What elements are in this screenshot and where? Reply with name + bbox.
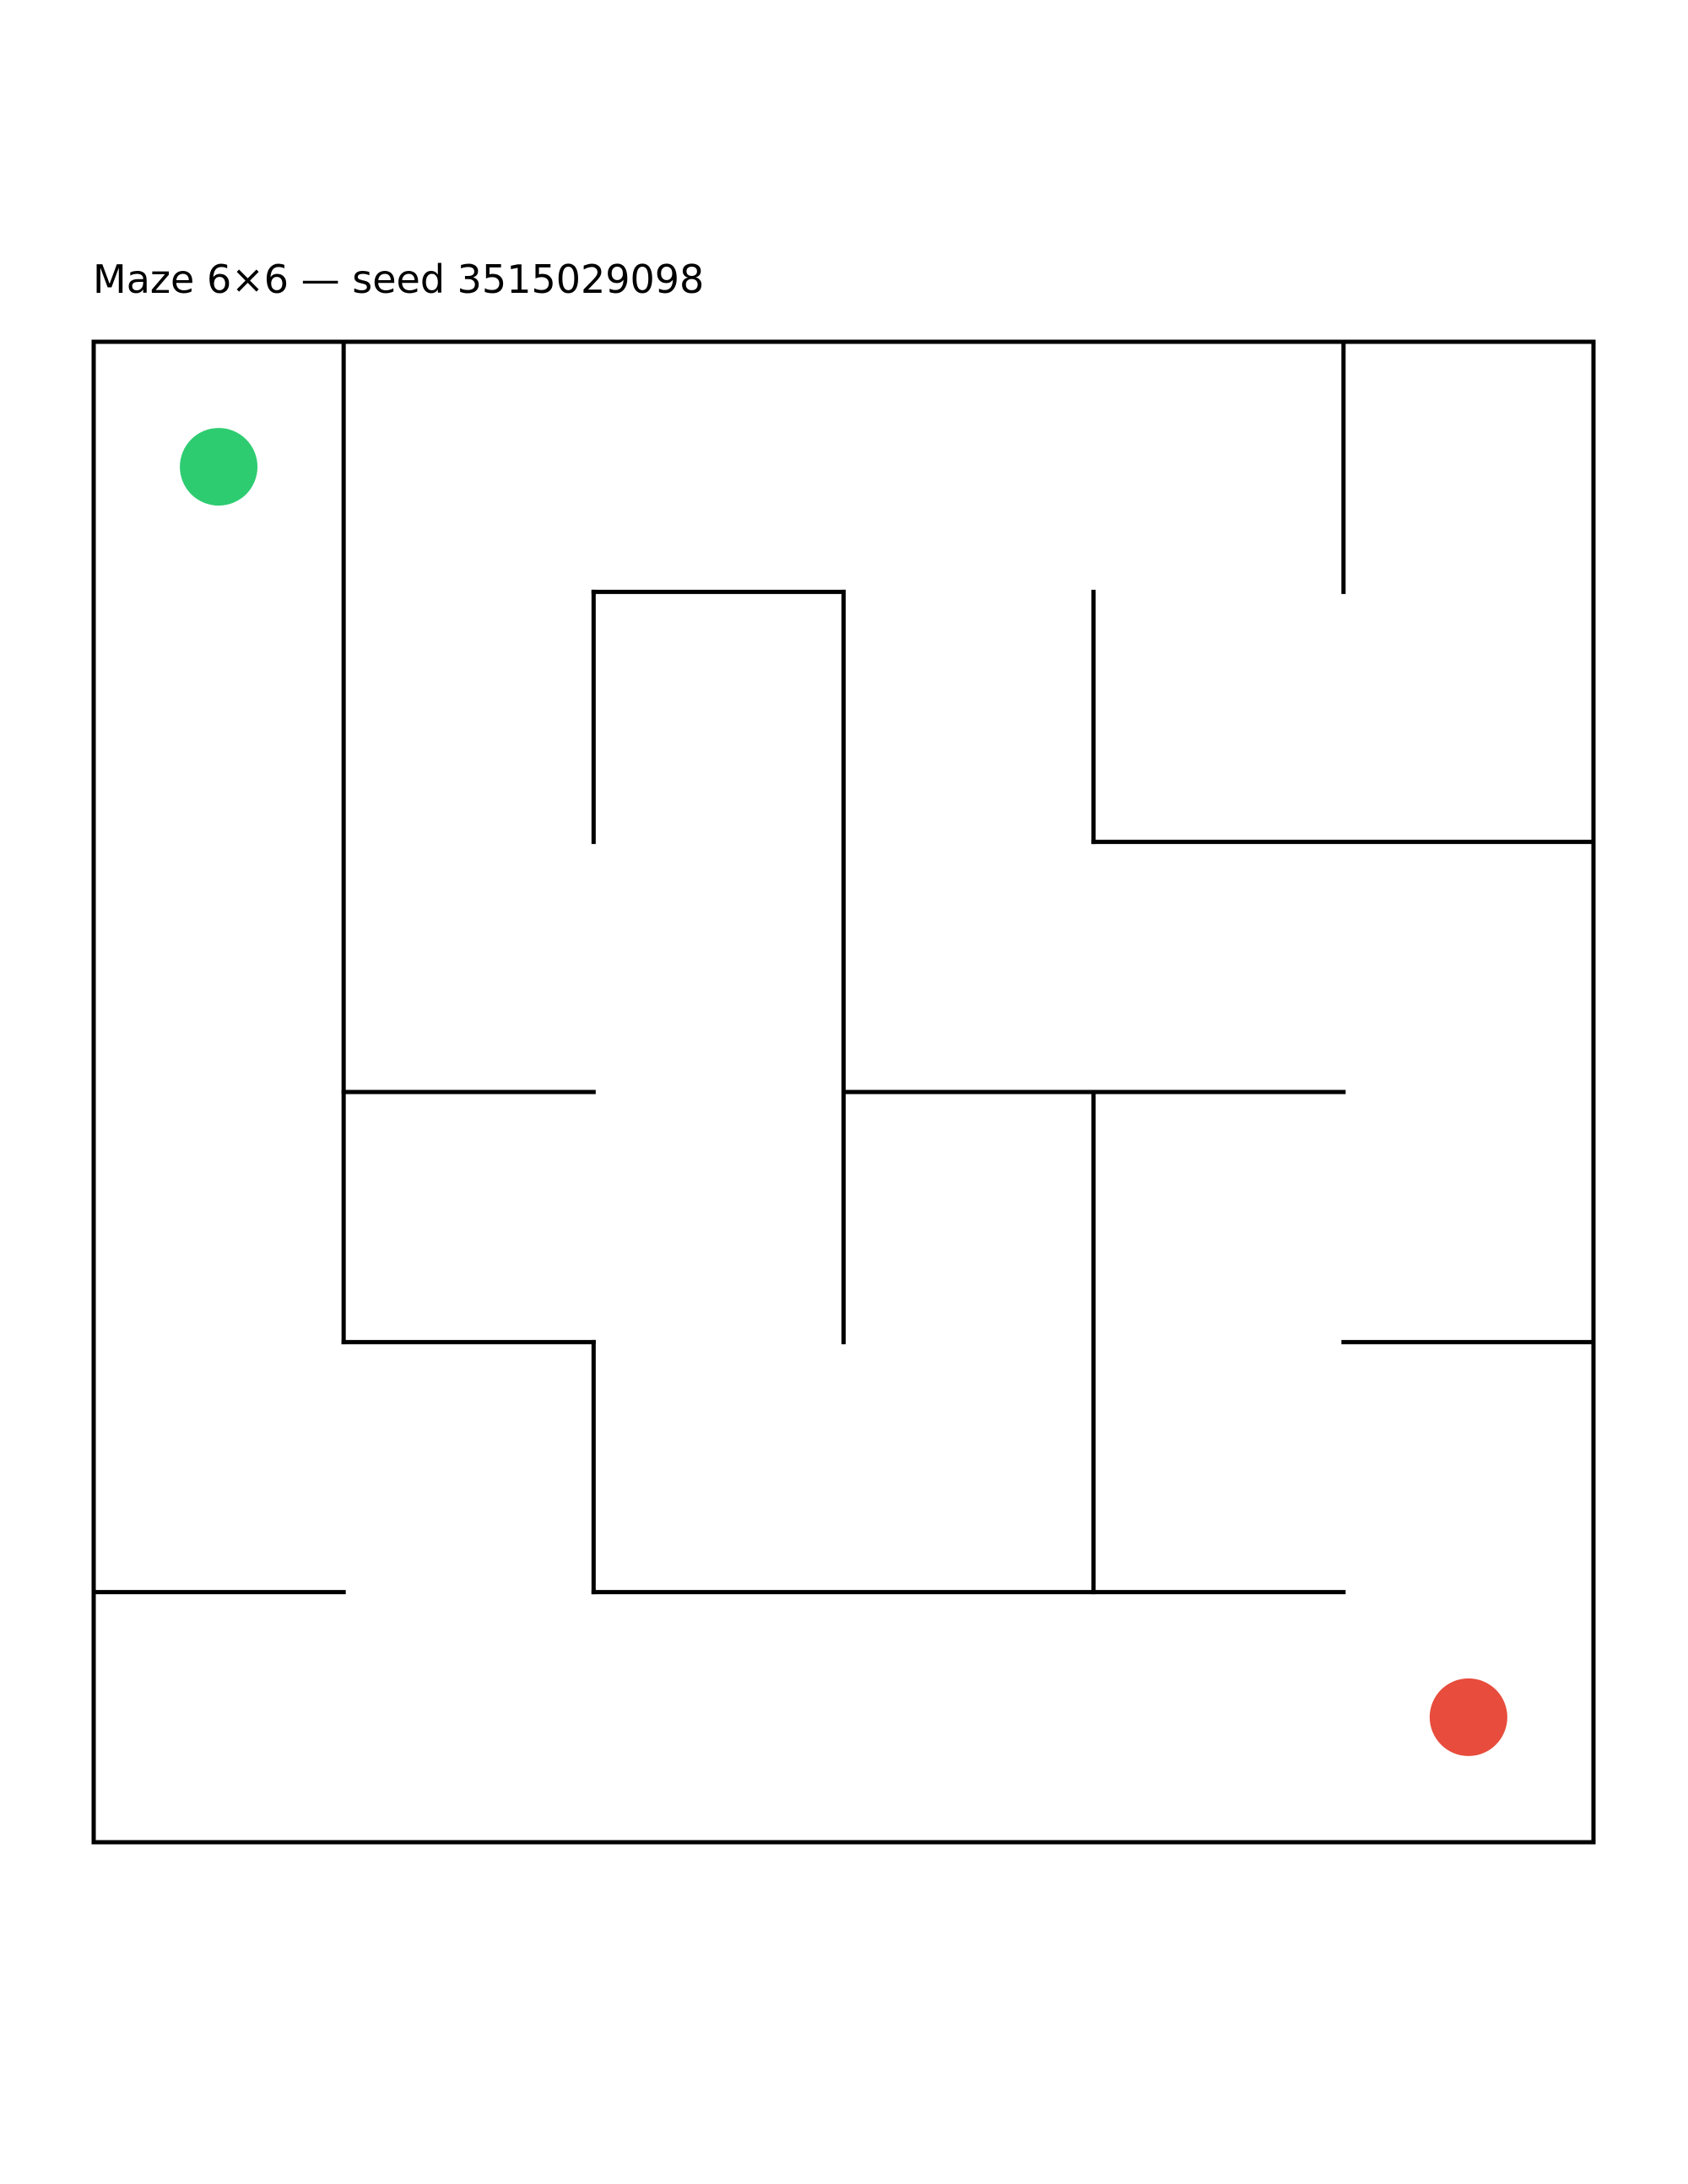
maze-figure: Maze 6×6 — seed 3515029098 [0,0,1688,2184]
start-marker [180,428,257,505]
end-marker [1430,1679,1507,1756]
maze-canvas [0,0,1688,2184]
